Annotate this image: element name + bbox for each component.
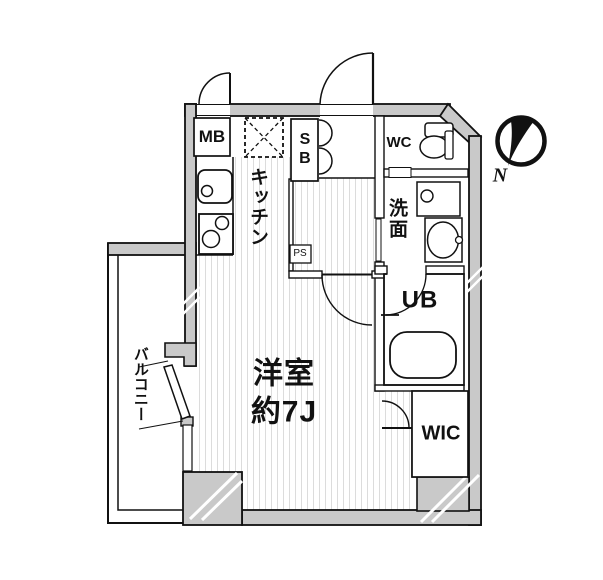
- floorplan-canvas: [0, 0, 603, 580]
- washer-pan: [417, 182, 460, 216]
- floorplan: MB SB キッチン WC 洗面 UB WIC 洋室 約7J バルコニー PS …: [0, 0, 603, 580]
- label-ps: PS: [293, 249, 306, 260]
- washroom-door: [376, 219, 381, 261]
- label-wic: WIC: [422, 424, 461, 445]
- label-washroom: 洗面: [386, 198, 406, 240]
- label-ub: UB: [402, 287, 439, 312]
- label-balcony: バルコニー: [132, 347, 148, 422]
- bathtub: [390, 332, 456, 378]
- label-sb: SB: [296, 131, 313, 169]
- kitchen-sink: [198, 170, 232, 203]
- label-compass-north: N: [493, 166, 507, 187]
- kitchen-stove: [199, 214, 233, 254]
- label-mb: MB: [199, 128, 225, 146]
- compass: [498, 118, 545, 167]
- refrigerator-space: [245, 118, 283, 157]
- sb-folding-door: [319, 120, 332, 174]
- label-bedroom: 洋室 約7J: [251, 356, 317, 431]
- wash-basin: [425, 218, 463, 262]
- label-kitchen: キッチン: [247, 167, 267, 247]
- wc-door: [389, 168, 411, 178]
- mb-door: [199, 73, 230, 104]
- label-wc: WC: [387, 135, 412, 151]
- toilet: [420, 123, 453, 159]
- entrance-door: [320, 53, 373, 104]
